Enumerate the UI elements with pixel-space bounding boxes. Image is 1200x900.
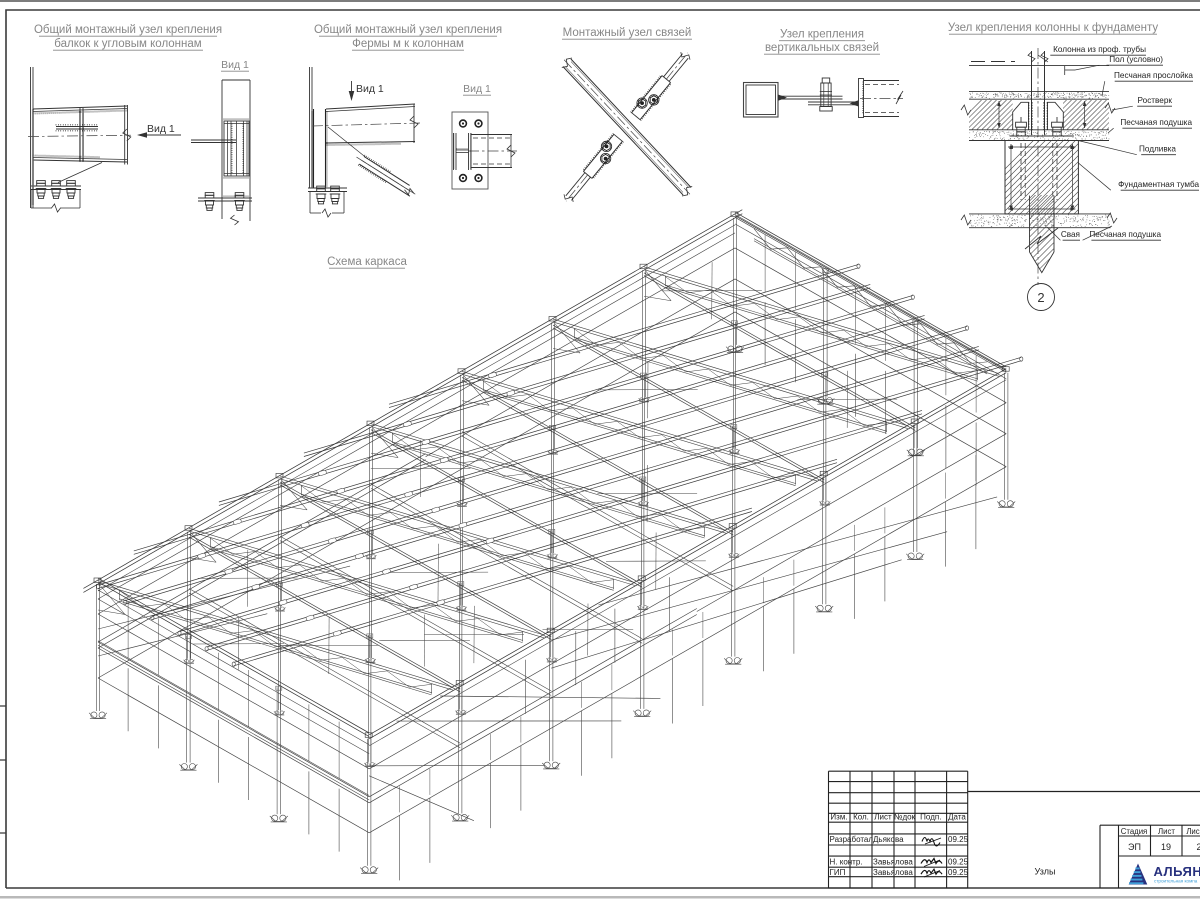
svg-text:Ростверк: Ростверк bbox=[1138, 96, 1173, 105]
svg-text:Лист: Лист bbox=[1158, 827, 1175, 836]
svg-text:Дата: Дата bbox=[948, 813, 966, 822]
svg-text:09.25: 09.25 bbox=[948, 835, 969, 844]
svg-text:Схема каркаса: Схема каркаса bbox=[327, 256, 407, 268]
svg-text:Вид 1: Вид 1 bbox=[356, 83, 384, 95]
svg-text:Вид 1: Вид 1 bbox=[147, 123, 175, 135]
svg-text:Н. контр.: Н. контр. bbox=[830, 858, 863, 867]
svg-text:Песчаная прослойка: Песчаная прослойка bbox=[1114, 71, 1193, 80]
svg-text:Узел крепления: Узел крепления bbox=[780, 29, 864, 41]
svg-text:№док: №док bbox=[894, 813, 916, 822]
svg-text:Дьякова: Дьякова bbox=[873, 835, 904, 844]
svg-text:09.25: 09.25 bbox=[948, 868, 969, 877]
svg-text:Общий монтажный узел крепления: Общий монтажный узел крепления bbox=[314, 24, 502, 36]
svg-text:Общий монтажный узел крепления: Общий монтажный узел крепления bbox=[34, 24, 222, 36]
svg-text:балкок к угловым колоннам: балкок к угловым колоннам bbox=[54, 38, 201, 50]
svg-text:Песчаная подушка: Песчаная подушка bbox=[1120, 118, 1192, 127]
svg-text:Подп.: Подп. bbox=[920, 813, 941, 822]
svg-text:Монтажный узел связей: Монтажный узел связей bbox=[563, 27, 692, 39]
svg-text:Свая: Свая bbox=[1061, 230, 1080, 239]
svg-text:09.25: 09.25 bbox=[948, 858, 969, 867]
svg-text:Вид 1: Вид 1 bbox=[221, 59, 249, 71]
svg-text:ГИП: ГИП bbox=[830, 868, 846, 877]
svg-text:Колонна из проф. трубы: Колонна из проф. трубы bbox=[1053, 45, 1146, 54]
svg-text:2: 2 bbox=[1196, 842, 1200, 852]
svg-text:Узел крепления колонны к фунда: Узел крепления колонны к фундаменту bbox=[948, 22, 1159, 34]
svg-text:Завьялова: Завьялова bbox=[873, 868, 913, 877]
svg-text:Разработал: Разработал bbox=[830, 835, 874, 844]
svg-text:Фундаментная тумба: Фундаментная тумба bbox=[1118, 180, 1199, 189]
svg-text:Стадия: Стадия bbox=[1121, 827, 1148, 836]
svg-text:АЛЬЯН: АЛЬЯН bbox=[1154, 864, 1200, 879]
svg-text:Пол (условно): Пол (условно) bbox=[1109, 55, 1163, 64]
svg-text:строительная компа: строительная компа bbox=[1154, 879, 1198, 884]
svg-text:Вид 1: Вид 1 bbox=[463, 83, 491, 95]
svg-text:вертикальных связей: вертикальных связей bbox=[765, 42, 879, 54]
svg-text:Кол.: Кол. bbox=[853, 813, 869, 822]
svg-text:Лист: Лист bbox=[874, 813, 892, 822]
svg-text:Подливка: Подливка bbox=[1139, 145, 1176, 154]
svg-text:Завьялова: Завьялова bbox=[873, 858, 913, 867]
svg-text:ЭП: ЭП bbox=[1128, 842, 1141, 852]
svg-text:Узлы: Узлы bbox=[1035, 867, 1056, 877]
svg-text:Изм.: Изм. bbox=[830, 813, 847, 822]
svg-text:Фермы м к колоннам: Фермы м к колоннам bbox=[352, 38, 464, 50]
svg-text:19: 19 bbox=[1161, 842, 1171, 852]
svg-text:Лис: Лис bbox=[1186, 827, 1199, 836]
svg-text:2: 2 bbox=[1037, 290, 1044, 305]
